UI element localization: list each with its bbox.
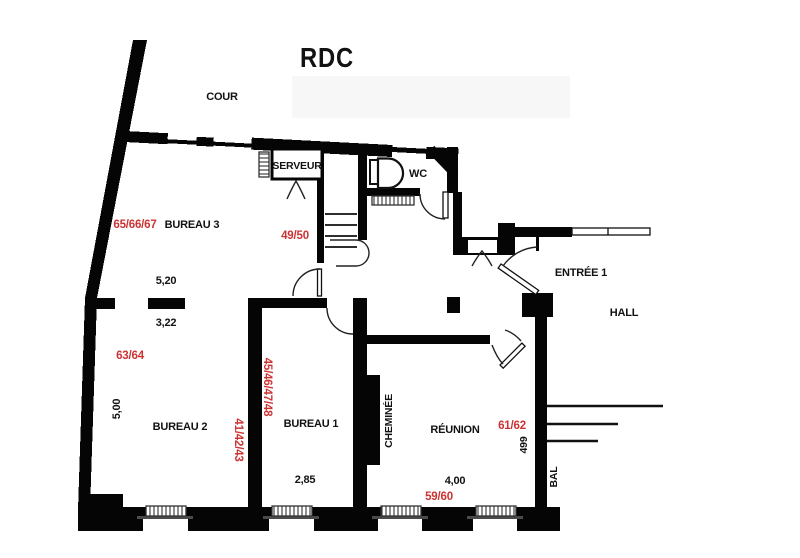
door-arc-reunion	[492, 345, 503, 364]
label-bureau1: BUREAU 1	[284, 418, 339, 430]
dim-reunion-width: 4,00	[445, 475, 466, 487]
wall-vestibule-left	[453, 192, 462, 240]
radiator-icon	[476, 506, 516, 516]
radiator-icon-serveur	[259, 152, 269, 177]
facade-window	[392, 147, 426, 154]
hall-steps	[547, 406, 663, 441]
dim-bureau3-width: 5,20	[156, 275, 177, 287]
label-bureau2: BUREAU 2	[153, 421, 208, 433]
radiator-icon	[146, 506, 186, 516]
floorplan-canvas: RDC COUR SERVEUR WC ENTRÉE 1 HALL BUREAU…	[0, 0, 800, 558]
ref-bureau1: 45/46/47/48	[261, 358, 273, 417]
label-cheminee: CHEMINÉE	[382, 394, 395, 448]
wall-divider-b3-mid	[148, 298, 185, 309]
wall-bottom-left-corner	[80, 494, 123, 510]
dim-bureau2-height: 5,00	[111, 399, 123, 420]
window-reunion-2	[473, 519, 517, 531]
door-leaf	[318, 269, 322, 296]
dim-bureau3-opening: 3,22	[156, 317, 177, 329]
entrance-glazing	[572, 228, 650, 235]
label-wc: WC	[409, 168, 427, 180]
label-entree1: ENTRÉE 1	[555, 266, 607, 279]
wall-entrance-top	[515, 227, 572, 237]
ref-stair: 49/50	[281, 230, 309, 242]
wall-divider-b3-left	[85, 298, 115, 309]
wall-b1-right	[353, 308, 367, 513]
page-title: RDC	[300, 41, 354, 73]
wall-wc-bottom	[362, 188, 420, 196]
door-leaf-entrance	[498, 264, 539, 294]
label-cour: COUR	[206, 91, 238, 103]
radiator-icon-wc	[372, 196, 414, 205]
floorplan-rdc: RDC COUR SERVEUR WC ENTRÉE 1 HALL BUREAU…	[0, 0, 800, 558]
label-serveur: SERVEUR	[272, 160, 322, 172]
label-reunion: RÉUNION	[430, 423, 480, 436]
wall-reunion-right	[535, 310, 547, 513]
label-bureau3: BUREAU 3	[165, 219, 220, 231]
ref-bureau2: 63/64	[116, 350, 145, 362]
wall-left-lower	[78, 298, 97, 510]
wall-left-upper	[85, 40, 147, 298]
radiator-icon	[272, 506, 312, 516]
ref-reunion: 61/62	[498, 420, 526, 432]
radiator-icon	[381, 506, 421, 516]
label-bal: BAL	[548, 466, 560, 488]
wall-b2-b1	[248, 298, 262, 513]
ref-bureau3: 65/66/67	[113, 219, 156, 231]
ref-bureau2-wall: 41/42/43	[232, 418, 244, 461]
pillar-hall	[447, 297, 460, 313]
dim-hall: 499	[518, 436, 530, 453]
window-reunion-1	[378, 519, 422, 531]
window-bureau1	[269, 519, 314, 531]
facade-window	[213, 142, 251, 148]
ref-reunion-low: 59/60	[425, 491, 453, 503]
wall-entrance-stub	[536, 237, 539, 251]
watermark-block	[292, 76, 570, 118]
door-arc	[293, 269, 320, 296]
stair-handrail	[330, 240, 369, 266]
facade-window	[167, 139, 196, 145]
wall-vestibule-block	[498, 223, 515, 255]
door-arc-reunion-2	[505, 330, 521, 341]
door-leaf-reunion	[500, 343, 525, 368]
wall-wc-right	[447, 147, 458, 193]
door-leaf-wc	[443, 192, 448, 218]
door-arc-wc	[420, 194, 445, 219]
wall-reunion-top	[367, 335, 490, 344]
door-arc-bureau1	[327, 308, 353, 334]
folding-door-icon-serveur	[287, 181, 305, 199]
label-hall: HALL	[610, 307, 639, 319]
dim-bureau1-width: 2,85	[295, 474, 316, 486]
toilet-icon	[370, 159, 403, 189]
wall-corridor-bottom-stub	[353, 298, 367, 308]
chimney-block	[365, 375, 380, 465]
window-bureau2	[143, 519, 188, 531]
